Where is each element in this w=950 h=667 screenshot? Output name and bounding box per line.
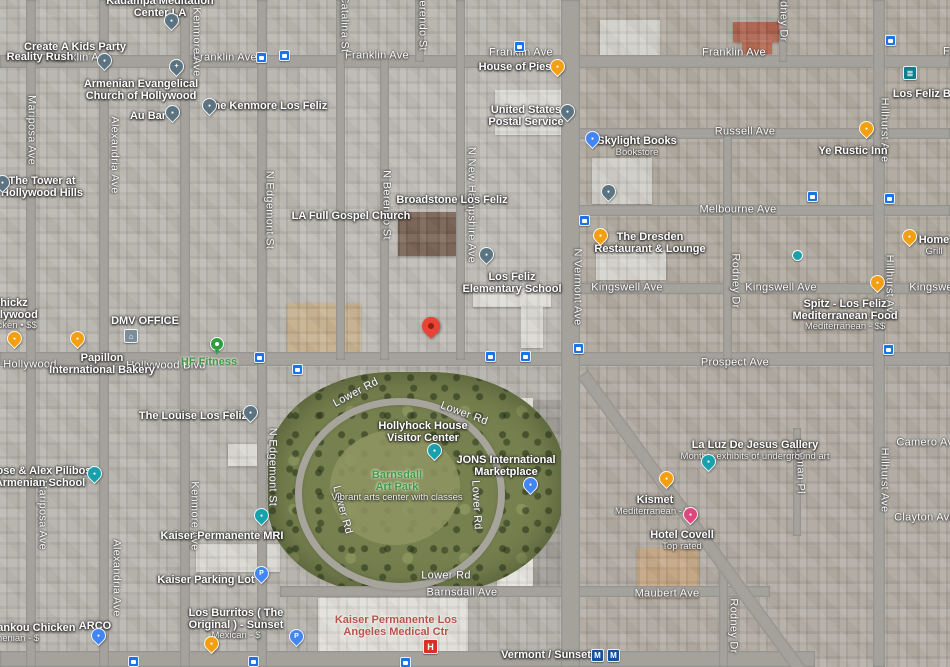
poi-label[interactable]: LA Full Gospel Church <box>292 211 411 223</box>
poi-label[interactable]: Kaiser Permanente LosAngeles Medical Ctr <box>335 615 457 638</box>
bus-stop-icon[interactable] <box>579 215 590 226</box>
generic-glyph: ● <box>561 105 574 118</box>
poi-label[interactable]: HF Fitness <box>181 357 237 369</box>
street-label: Barnsdall Ave <box>427 588 498 599</box>
poi-sublabel: Top rated <box>650 542 714 552</box>
road-vertical <box>336 0 345 360</box>
bus-stop-icon[interactable] <box>128 656 139 667</box>
bus-stop-icon[interactable] <box>400 657 411 667</box>
poi-label[interactable]: Armenian EvangelicalChurch of Hollywood <box>84 79 198 102</box>
bus-stop-icon[interactable] <box>254 352 265 363</box>
road-horizontal <box>0 55 950 68</box>
poi-label[interactable]: ChickzHollywoodChicken • $$ <box>0 298 38 331</box>
poi-label-line: Papillon <box>49 353 155 365</box>
street-label: Franklin Ave <box>702 48 766 59</box>
shopping-glyph: ● <box>524 478 537 491</box>
poi-label-line: Armenian School <box>0 478 91 490</box>
generic-glyph: ● <box>480 248 493 261</box>
street-label: Franklin Ave <box>193 53 257 64</box>
poi-sublabel: Chicken • $$ <box>0 321 38 331</box>
gas-glyph: ● <box>92 629 105 642</box>
poi-label[interactable]: DMV OFFICE <box>111 316 179 328</box>
bus-stop-icon[interactable] <box>883 344 894 355</box>
poi-label[interactable]: Vibrant arts center with classes <box>331 493 462 503</box>
street-label: Franklin Ave <box>943 47 950 58</box>
street-label: Kingswell Ave <box>591 283 663 294</box>
poi-label-line: Vermont / Sunset <box>501 650 591 662</box>
poi-label-line: Home <box>919 235 950 247</box>
bus-stop-icon[interactable] <box>279 50 290 61</box>
road-vertical <box>456 0 465 360</box>
poi-label[interactable]: Hollyhock HouseVisitor Center <box>378 421 467 444</box>
parking-pin[interactable]: P <box>286 626 307 647</box>
attraction-glyph: ● <box>428 444 441 457</box>
poi-label[interactable]: Los Burritos ( TheOriginal ) - SunsetMex… <box>189 608 284 641</box>
poi-label[interactable]: JONS InternationalMarketplace <box>456 455 555 478</box>
poi-label-line: Hollyhock House <box>378 421 467 433</box>
dmv-government-icon[interactable]: ⌂ <box>124 329 138 343</box>
generic-glyph: ● <box>203 99 216 112</box>
poi-label[interactable]: Vermont / Sunset <box>501 650 591 662</box>
generic-glyph: ● <box>602 185 615 198</box>
poi-label[interactable]: Kaiser Permanente MRI <box>161 531 284 543</box>
parking-glyph: P <box>290 630 303 643</box>
parking-glyph: P <box>255 567 268 580</box>
poi-label-line: Los Feliz <box>462 272 561 284</box>
poi-sublabel: Grill <box>919 247 950 257</box>
poi-label[interactable]: The Kenmore Los Feliz <box>207 101 327 113</box>
bus-stop-icon[interactable] <box>884 193 895 204</box>
poi-sublabel: Armenian - $ <box>0 634 39 644</box>
street-label: Lower Rd <box>421 571 470 582</box>
shopping-glyph: ● <box>586 132 599 145</box>
poi-label[interactable]: Kadampa MeditationCenter LA <box>106 0 214 19</box>
poi-label-line: Restaurant & Lounge <box>594 244 705 256</box>
poi-label-line: Kaiser Permanente Los <box>335 615 457 627</box>
poi-label[interactable]: Au Bar <box>130 111 166 123</box>
restaurant-glyph: ● <box>660 472 673 485</box>
poi-label-line: Visitor Center <box>378 433 467 445</box>
poi-label-line: Barnsdall <box>372 470 422 482</box>
street-label: N Berendo St <box>417 0 428 51</box>
street-label: Hillhurst Ave <box>879 448 890 513</box>
street-label: Rodney Dr <box>778 0 789 42</box>
poi-label[interactable]: Reality Rush <box>7 52 74 64</box>
poi-label-line: Skylight Books <box>597 136 676 148</box>
restaurant-glyph: ● <box>594 229 607 242</box>
poi-label-line: Kaiser Permanente MRI <box>161 531 284 543</box>
poi-label-line: Hollywood Hills <box>1 188 83 200</box>
street-label: N Catalina St <box>339 0 350 52</box>
poi-label[interactable]: Rose & Alex PilibosArmenian School <box>0 466 91 489</box>
street-label: N Berendo St <box>381 170 392 240</box>
attraction-glyph: ● <box>88 467 101 480</box>
poi-label-line: Los Feliz Branch Library <box>893 89 950 101</box>
poi-label-line: Center LA <box>106 8 214 20</box>
generic-glyph: ● <box>166 106 179 119</box>
poi-label-line: Au Bar <box>130 111 166 123</box>
poi-label-line: Kaiser Parking Lot <box>157 575 254 587</box>
metro-station-icon[interactable]: M <box>591 649 604 662</box>
poi-label[interactable]: HomeGrill <box>919 235 950 257</box>
bus-stop-icon[interactable] <box>256 52 267 63</box>
poi-label-line: Chickz <box>0 298 38 310</box>
street-label: Camero Ave <box>896 438 950 449</box>
poi-sublabel: Mediterranean - $$ <box>792 322 897 332</box>
poi-label-line: House of Pies <box>479 62 552 74</box>
road-vertical <box>561 0 580 667</box>
street-label: Lower Rd <box>469 480 483 530</box>
hotel-glyph: ● <box>684 508 697 521</box>
poi-label-line: Postal Service <box>488 117 563 129</box>
poi-label[interactable]: Ye Rustic Inn <box>818 146 887 158</box>
restaurant-glyph: ● <box>205 637 218 650</box>
hf-fitness-pin[interactable] <box>210 337 224 351</box>
poi-label-line: DMV OFFICE <box>111 316 179 328</box>
poi-sublabel: Vibrant arts center with classes <box>331 493 462 503</box>
poi-label[interactable]: Armenian - $ <box>0 634 39 644</box>
generic-glyph: ● <box>98 54 111 67</box>
building-roof <box>521 306 543 348</box>
attraction-glyph: ● <box>255 509 268 522</box>
poi-label-line: The Tower at <box>1 176 83 188</box>
street-label: Franklin Ave <box>345 51 409 62</box>
building-roof <box>287 303 361 353</box>
poi-label[interactable]: Skylight BooksBookstore <box>597 136 676 158</box>
road-vertical <box>723 128 732 360</box>
bus-stop-icon[interactable] <box>292 364 303 375</box>
restaurant-glyph: ● <box>871 276 884 289</box>
poi-label[interactable]: Broadstone Los Feliz <box>396 195 507 207</box>
library-icon[interactable]: ≣ <box>903 66 917 80</box>
street-label: Maubert Ave <box>635 589 700 600</box>
poi-label-line: The Louise Los Feliz <box>139 411 247 423</box>
street-label: Clayton Ave <box>894 513 950 524</box>
generic-glyph: ● <box>0 176 9 189</box>
attraction-glyph: ● <box>702 455 715 468</box>
poi-label-line: Reality Rush <box>7 52 74 64</box>
street-label: N Edgemont St <box>264 171 275 250</box>
poi-label[interactable]: United StatesPostal Service <box>488 105 563 128</box>
poi-label-line: LA Full Gospel Church <box>292 211 411 223</box>
poi-dot-pin[interactable] <box>792 250 803 261</box>
church-glyph: + <box>170 60 183 73</box>
poi-sublabel: Mexican - $ <box>189 631 284 641</box>
poi-label-line: Angeles Medical Ctr <box>335 627 457 639</box>
building-roof <box>600 20 660 60</box>
poi-label[interactable]: House of Pies <box>479 62 552 74</box>
poi-label-line: Rose & Alex Pilibos <box>0 466 91 478</box>
poi-label-line: Church of Hollywood <box>84 91 198 103</box>
poi-label-line: Los Burritos ( The <box>189 608 284 620</box>
street-label: N Vermont Ave <box>572 248 583 325</box>
poi-label-line: International Bakery <box>49 365 155 377</box>
street-label: Melbourne Ave <box>699 205 776 216</box>
generic-glyph: ● <box>165 14 178 27</box>
bus-stop-icon[interactable] <box>248 656 259 667</box>
poi-label[interactable]: BarnsdallArt Park <box>372 470 422 493</box>
poi-label-line: Elementary School <box>462 284 561 296</box>
bus-stop-icon[interactable] <box>573 343 584 354</box>
poi-label-line: The Kenmore Los Feliz <box>207 101 327 113</box>
bus-stop-icon[interactable] <box>520 351 531 362</box>
poi-label[interactable]: Hotel CovellTop rated <box>650 530 714 552</box>
bus-stop-icon[interactable] <box>485 351 496 362</box>
poi-label-line: Spitz - Los Feliz <box>792 299 897 311</box>
restaurant-glyph: ● <box>860 122 873 135</box>
bus-stop-icon[interactable] <box>885 35 896 46</box>
poi-label[interactable]: Los FelizElementary School <box>462 272 561 295</box>
street-label: Alexandria Ave <box>109 116 120 193</box>
poi-label-line: Ye Rustic Inn <box>818 146 887 158</box>
satellite-map[interactable]: Franklin AveFranklin AveFranklin AveFran… <box>0 0 950 667</box>
restaurant-glyph: ● <box>8 332 21 345</box>
restaurant-glyph: ● <box>71 332 84 345</box>
poi-label[interactable]: Kaiser Parking Lot <box>157 575 254 587</box>
restaurant-glyph: ● <box>903 230 916 243</box>
poi-label[interactable]: The Tower atHollywood Hills <box>1 176 83 199</box>
poi-label-line: Hotel Covell <box>650 530 714 542</box>
poi-label-line: La Luz De Jesus Gallery <box>681 440 830 452</box>
street-label: Rodney Dr <box>730 253 741 308</box>
poi-label-line: The Dresden <box>594 232 705 244</box>
bus-stop-icon[interactable] <box>514 41 525 52</box>
metro-station-icon[interactable]: M <box>607 649 620 662</box>
street-label: Prospect Ave <box>701 358 769 369</box>
street-label: Alexandria Ave <box>111 539 122 616</box>
poi-label[interactable]: The Louise Los Feliz <box>139 411 247 423</box>
poi-label-line: HF Fitness <box>181 357 237 369</box>
generic-glyph: ● <box>244 406 257 419</box>
poi-label-line: Armenian Evangelical <box>84 79 198 91</box>
street-label: Kingswell Ave <box>745 283 817 294</box>
poi-label[interactable]: Spitz - Los FelizMediterranean FoodMedit… <box>792 299 897 332</box>
street-label: N Edgemont St <box>267 428 278 507</box>
poi-label[interactable]: PapillonInternational Bakery <box>49 353 155 376</box>
poi-label-line: Kismet <box>615 495 695 507</box>
poi-label-line: Marketplace <box>456 467 555 479</box>
restaurant-glyph: ● <box>551 60 564 73</box>
bus-stop-icon[interactable] <box>807 191 818 202</box>
street-label: Mariposa Ave <box>26 95 37 165</box>
street-label: Rodney Dr <box>728 598 739 653</box>
street-label: Mariposa Ave <box>37 480 48 550</box>
street-label: Russell Ave <box>715 127 776 138</box>
poi-label-line: JONS International <box>456 455 555 467</box>
poi-sublabel: Bookstore <box>597 148 676 158</box>
hospital-icon[interactable]: H <box>423 639 438 654</box>
street-label: Kingswell Ave <box>909 283 950 294</box>
poi-label-line: United States <box>488 105 563 117</box>
poi-label[interactable]: Los Feliz Branch Library <box>893 89 950 101</box>
poi-label-line: Broadstone Los Feliz <box>396 195 507 207</box>
poi-label[interactable]: The DresdenRestaurant & Lounge <box>594 232 705 255</box>
